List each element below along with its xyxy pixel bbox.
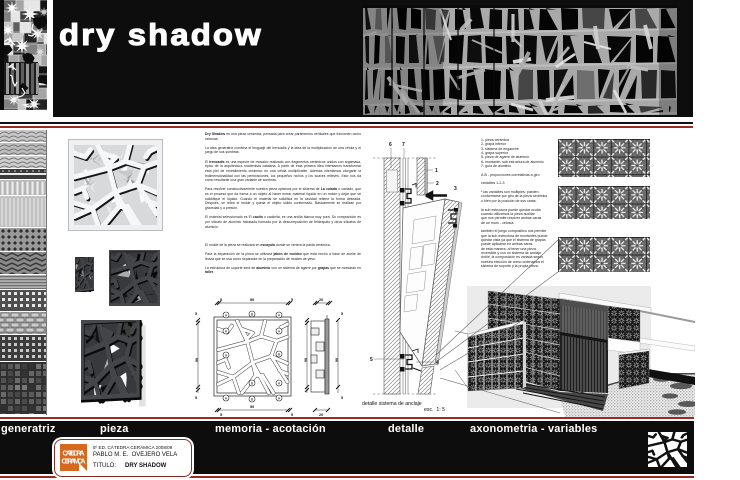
svg-text:5: 5 [220,298,222,302]
svg-text:5: 5 [341,312,343,316]
svg-text:5: 5 [291,298,293,302]
svg-text:20: 20 [319,298,323,302]
svg-text:5: 5 [370,357,373,363]
svg-text:5: 5 [341,396,343,400]
svg-text:1: 1 [435,168,438,174]
svg-text:90: 90 [304,358,308,362]
svg-text:2: 2 [436,181,439,187]
svg-text:5: 5 [195,396,197,400]
svg-text:90: 90 [335,358,339,362]
svg-text:CERAMICA: CERAMICA [62,459,86,466]
svg-text:3: 3 [454,186,457,192]
svg-text:5: 5 [195,312,197,316]
svg-text:90: 90 [250,405,254,409]
svg-text:6: 6 [389,142,392,148]
svg-text:CATEDRA: CATEDRA [63,451,85,458]
svg-text:7: 7 [402,142,405,148]
svg-text:90: 90 [195,358,199,362]
svg-text:90: 90 [250,298,254,302]
